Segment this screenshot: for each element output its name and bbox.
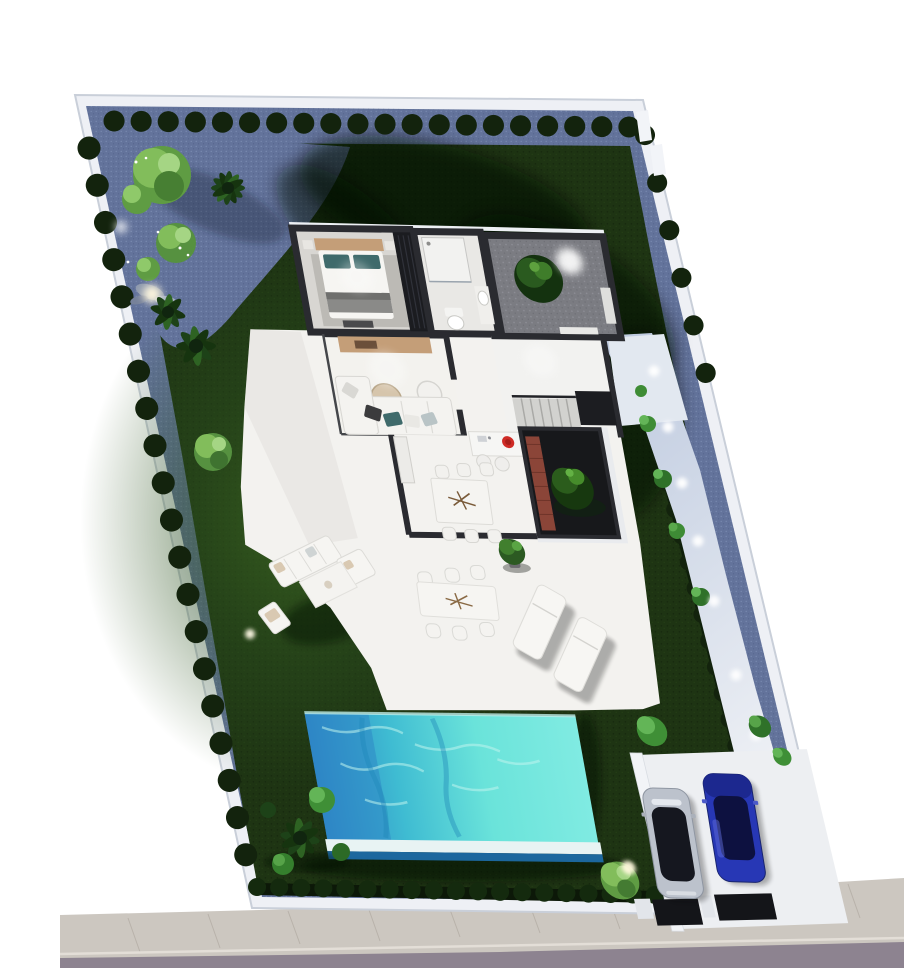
car-mirror xyxy=(753,801,759,805)
lawn-spotlight-1 xyxy=(245,629,255,639)
shower-glass xyxy=(429,282,471,283)
car-hood-highlight xyxy=(651,799,682,806)
car-mirror xyxy=(702,799,708,803)
clipped-tree-4 xyxy=(136,257,160,281)
clipped-tree-3 xyxy=(156,223,196,263)
dining-chair xyxy=(479,463,494,476)
bed-throw-stripe xyxy=(326,292,391,300)
dining-chair xyxy=(487,530,502,543)
site-plan-render xyxy=(0,0,904,968)
cushion-white xyxy=(404,414,420,428)
dining-chair xyxy=(456,463,471,476)
car-mirror xyxy=(690,814,696,818)
headboard xyxy=(314,238,384,251)
site-plan-stage xyxy=(0,0,904,968)
nightstand-right xyxy=(384,241,396,250)
lawn-tree xyxy=(194,433,232,471)
foot-bench xyxy=(343,320,374,327)
garden-spotlight-2 xyxy=(115,221,127,233)
driveway-strip-1 xyxy=(652,899,703,926)
stair-railing xyxy=(512,396,576,397)
nightstand-left xyxy=(302,240,314,249)
stair-landing xyxy=(575,391,617,425)
dining-chair xyxy=(442,527,457,540)
car-mirror xyxy=(641,812,647,816)
tv-slab xyxy=(354,341,377,349)
kitchen-island xyxy=(468,432,524,457)
driveway-strip-2 xyxy=(714,893,777,920)
clipped-tree-2 xyxy=(122,184,152,214)
media-sideboard xyxy=(337,336,432,353)
dining-chair xyxy=(434,465,449,478)
dining-chair xyxy=(464,529,479,542)
island-sink xyxy=(477,436,487,442)
pool xyxy=(302,711,604,862)
car-hood xyxy=(701,773,753,798)
